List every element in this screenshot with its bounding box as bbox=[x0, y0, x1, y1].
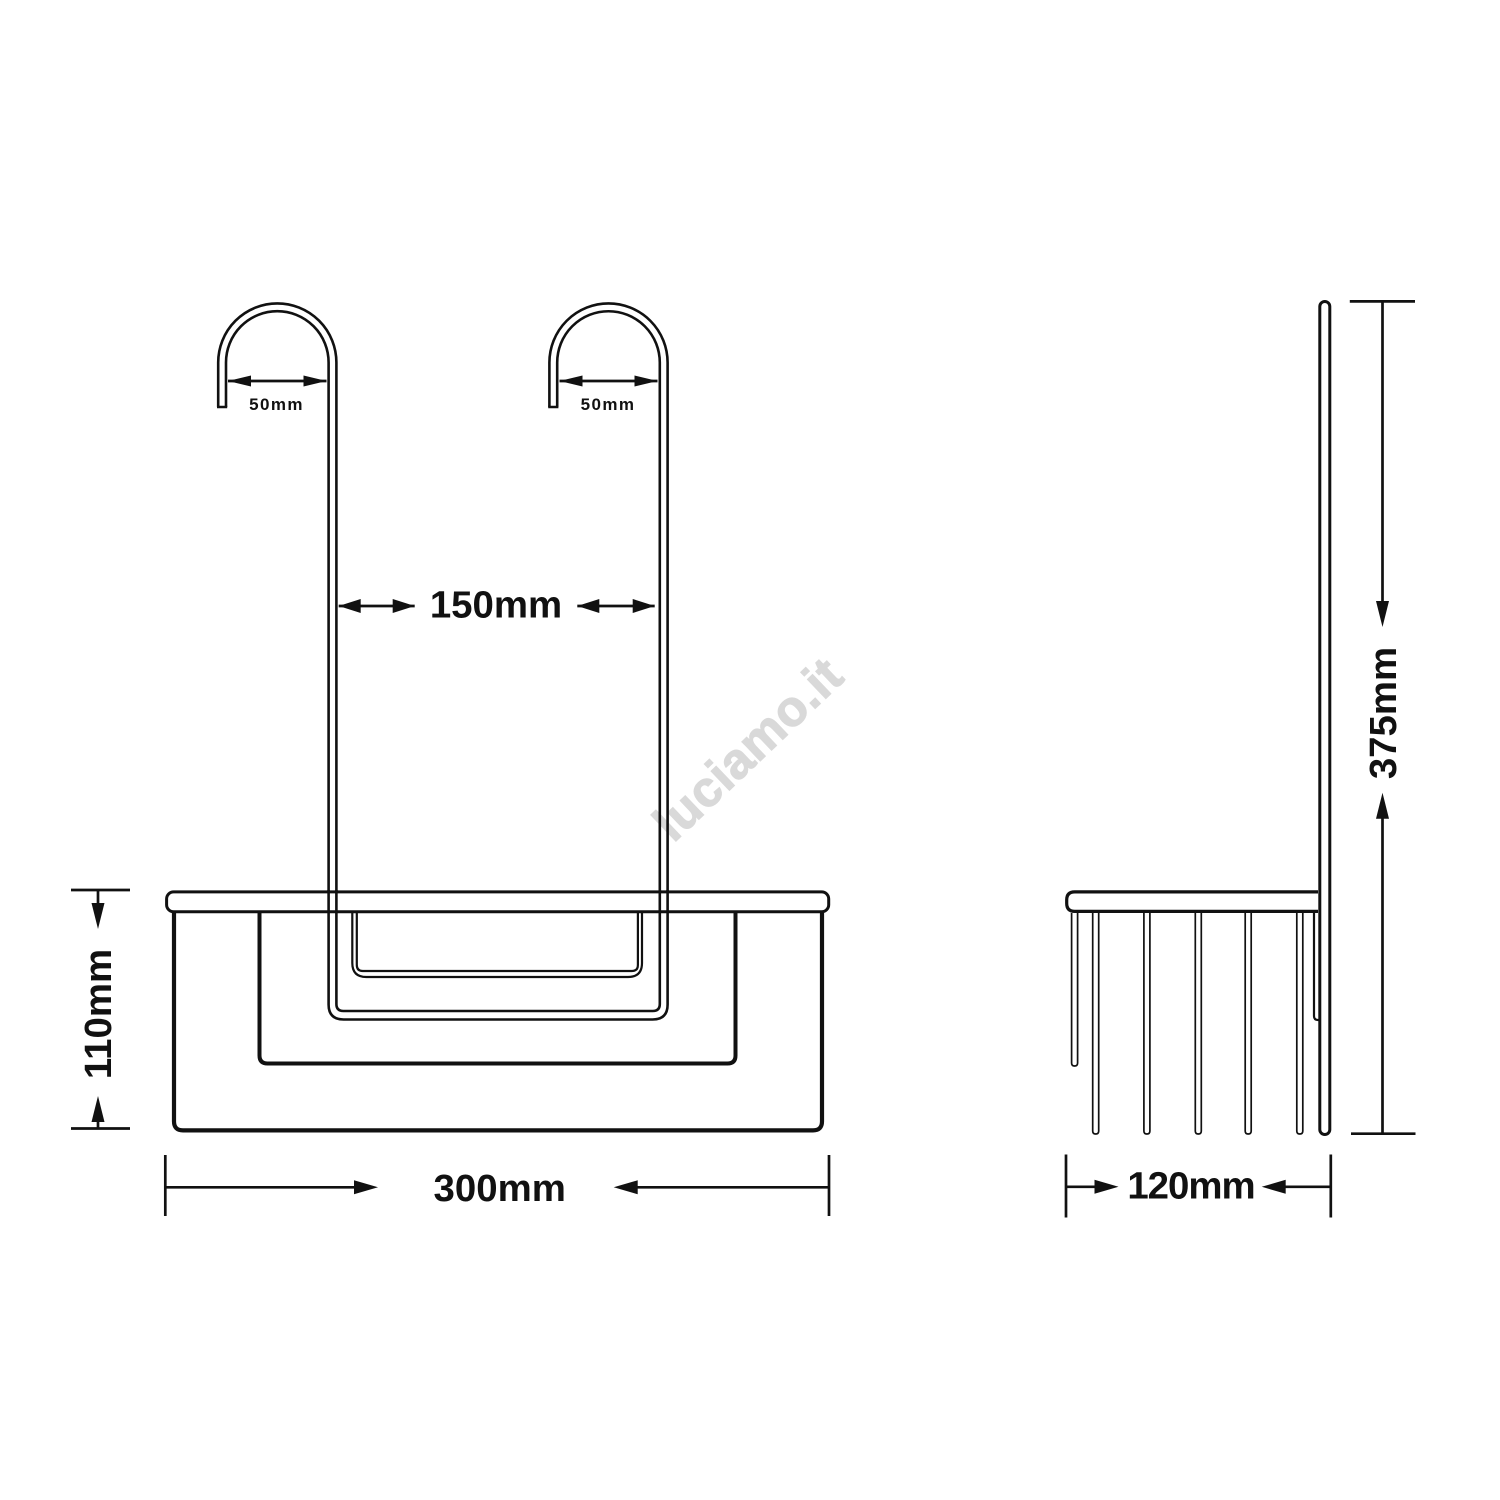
svg-text:375mm: 375mm bbox=[1362, 647, 1405, 779]
svg-text:120mm: 120mm bbox=[1127, 1164, 1254, 1207]
svg-text:luciamo.it: luciamo.it bbox=[642, 647, 853, 852]
svg-text:50mm: 50mm bbox=[249, 395, 304, 414]
svg-text:300mm: 300mm bbox=[434, 1167, 566, 1210]
svg-text:150mm: 150mm bbox=[430, 584, 562, 627]
svg-text:110mm: 110mm bbox=[77, 949, 120, 1079]
svg-text:50mm: 50mm bbox=[581, 395, 636, 414]
